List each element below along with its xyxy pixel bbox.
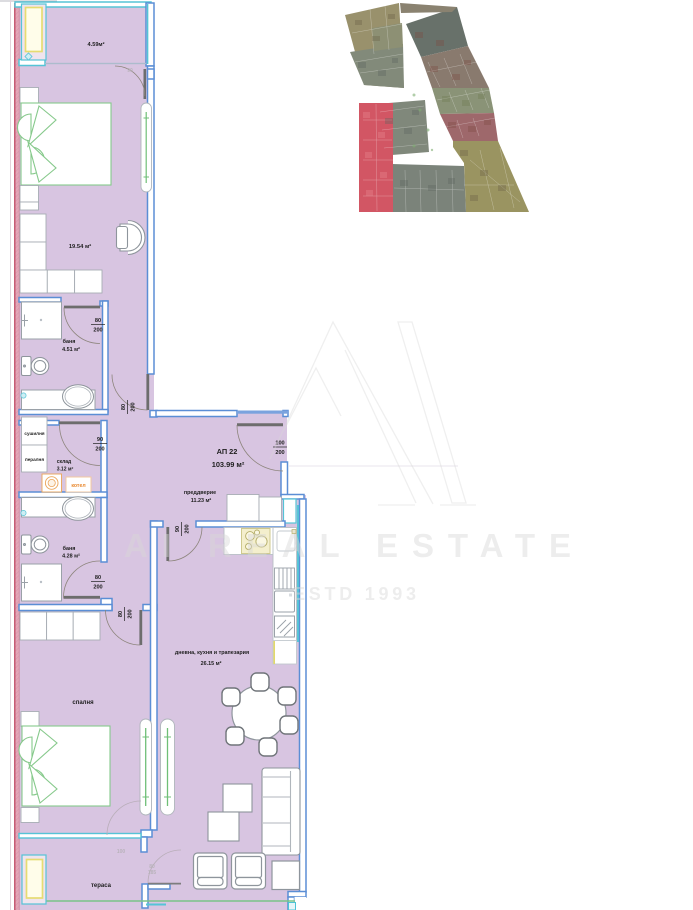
svg-text:90: 90 <box>175 526 181 532</box>
svg-text:80: 80 <box>118 611 124 617</box>
svg-text:11.23 м²: 11.23 м² <box>191 498 212 504</box>
svg-text:тераса: тераса <box>91 883 112 889</box>
svg-text:185: 185 <box>148 870 157 876</box>
svg-text:сушилня: сушилня <box>24 431 44 436</box>
svg-text:80: 80 <box>95 318 101 324</box>
svg-text:90: 90 <box>97 437 103 443</box>
svg-text:баня: баня <box>63 545 76 552</box>
svg-text:200: 200 <box>131 402 137 411</box>
svg-text:преддверие: преддверие <box>184 490 216 496</box>
svg-text:пералня: пералня <box>25 457 44 462</box>
svg-text:200: 200 <box>93 328 102 334</box>
svg-text:спалня: спалня <box>72 700 94 706</box>
svg-text:котел: котел <box>71 483 85 489</box>
svg-text:26.15 м²: 26.15 м² <box>201 661 222 667</box>
svg-text:80: 80 <box>121 404 127 410</box>
svg-text:103.99 м²: 103.99 м² <box>212 460 245 469</box>
svg-text:дневна, кухня и трапезария: дневна, кухня и трапезария <box>175 650 249 656</box>
svg-text:80: 80 <box>95 575 101 581</box>
svg-text:3.12 м²: 3.12 м² <box>57 467 74 473</box>
svg-text:баня: баня <box>63 338 76 345</box>
svg-text:100: 100 <box>117 849 126 855</box>
svg-text:19.54 м²: 19.54 м² <box>69 243 91 250</box>
svg-text:4.28 м²: 4.28 м² <box>62 554 80 560</box>
svg-text:4.59м²: 4.59м² <box>88 41 105 48</box>
svg-text:склад: склад <box>57 459 72 465</box>
svg-text:АП 22: АП 22 <box>217 447 238 456</box>
svg-text:90: 90 <box>127 68 133 74</box>
svg-text:200: 200 <box>95 447 104 453</box>
svg-text:4.51 м²: 4.51 м² <box>62 347 80 353</box>
svg-text:200: 200 <box>275 450 284 456</box>
svg-text:200: 200 <box>128 609 134 618</box>
svg-text:200: 200 <box>93 585 102 591</box>
